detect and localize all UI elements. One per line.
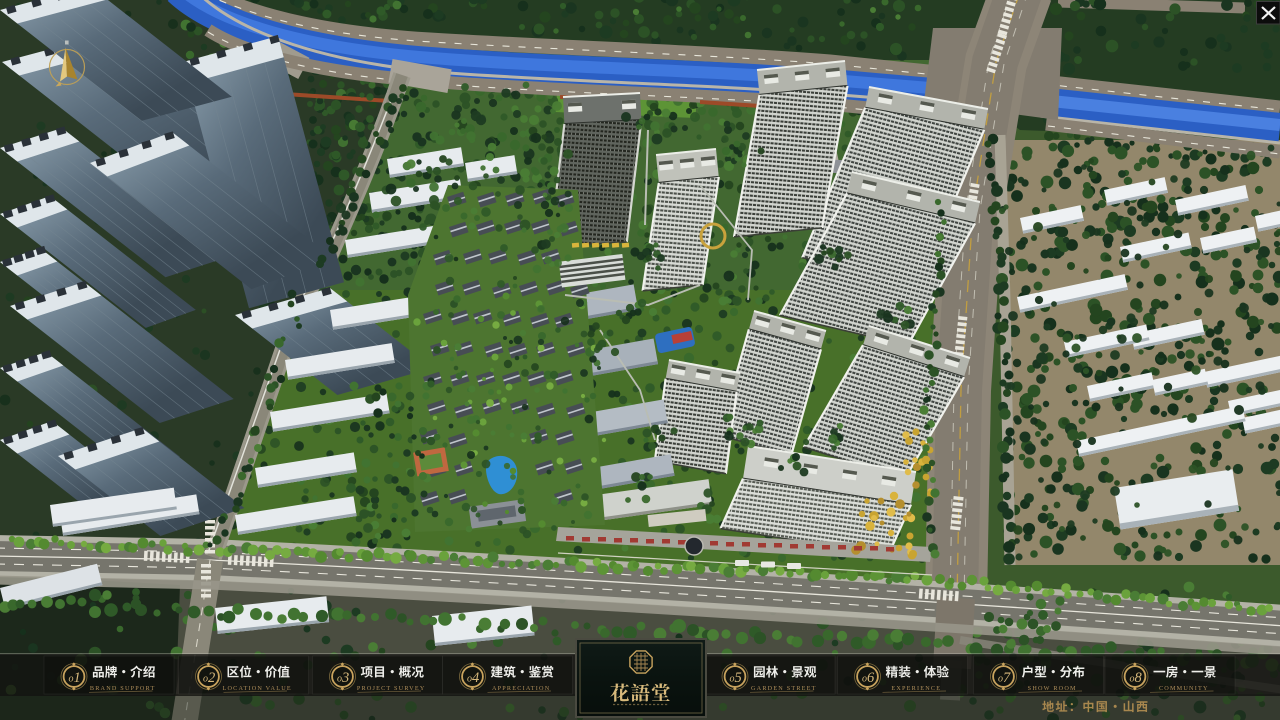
svg-text:7: 7 <box>1003 670 1011 686</box>
svg-text:4: 4 <box>472 670 479 686</box>
svg-text:6: 6 <box>867 670 875 686</box>
svg-text:2: 2 <box>208 670 215 686</box>
svg-text:5: 5 <box>735 670 742 686</box>
svg-text:1: 1 <box>74 670 81 686</box>
svg-text:3: 3 <box>341 670 349 686</box>
svg-text:8: 8 <box>1135 670 1143 686</box>
